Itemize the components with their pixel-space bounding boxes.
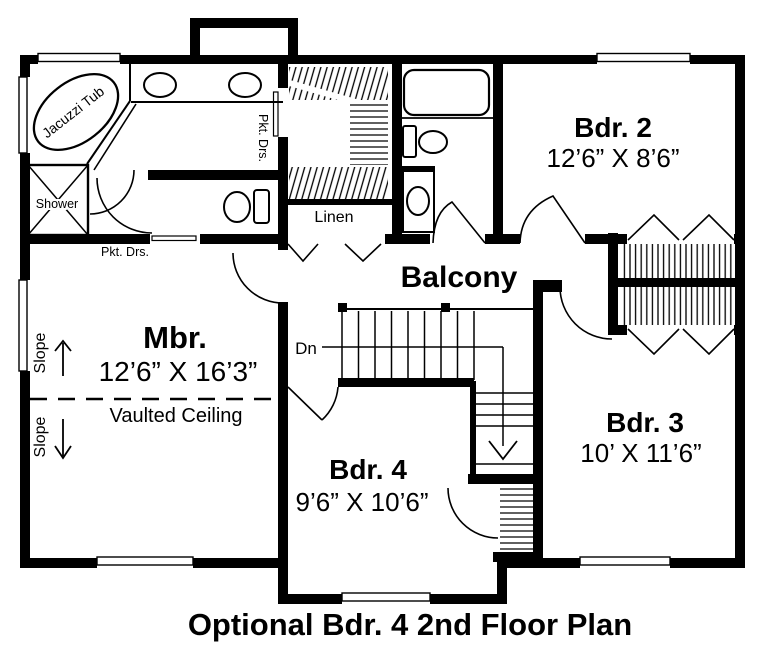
window-mbr-bottom (97, 557, 193, 565)
bifold-bdr2-closet-2 (683, 215, 734, 240)
toilet-tank-icon (403, 126, 416, 157)
tub-platform-diag-2 (94, 104, 136, 170)
label-stairs-down: Dn (295, 339, 317, 358)
door-arc-bdr4 (322, 387, 338, 420)
label-pocket-doors-hall: Pkt. Drs. (101, 245, 149, 259)
bifold-bdr3-closet-1 (628, 329, 679, 354)
walkin-closet-hatch-right (350, 103, 388, 165)
room-label-linen: Linen (314, 209, 353, 226)
wall-right (735, 55, 745, 568)
wall-bdr2-south-2 (585, 234, 627, 244)
wall-bdr4-closet-south (493, 552, 543, 562)
door-arc-shower (90, 170, 134, 214)
label-vaulted-ceiling: Vaulted Ceiling (109, 405, 242, 427)
wall-center-spine (278, 64, 288, 604)
room-label-mbr: Mbr. (143, 320, 207, 355)
door-bath (433, 202, 485, 243)
room-dims-bdr4: 9’6” X 10’6” (296, 487, 429, 517)
wall-linen-divider (288, 199, 392, 205)
opening-mbr-door (278, 250, 288, 302)
wall-stair-south (468, 474, 543, 484)
walkin-closet-hatch-top (289, 67, 388, 100)
wall-bay-right (497, 558, 507, 604)
window-bdr2-top (597, 54, 690, 62)
floor-plan-page: Mbr. 12’6” X 16’3” Bdr. 2 12’6” X 8’6” B… (0, 0, 760, 662)
bdr3-closet-hatch (620, 287, 732, 325)
window-bay (342, 593, 430, 601)
door-leaf-bdr4 (288, 387, 322, 420)
wall-bdr2-south-3 (734, 234, 745, 244)
door-arc-bdr3 (560, 287, 612, 339)
room-label-balcony: Balcony (401, 261, 518, 294)
pocket-door-hall (152, 236, 196, 241)
room-label-bdr3: Bdr. 3 (606, 407, 684, 438)
wall-closet2-south-2 (734, 325, 745, 335)
wall-wc-north (148, 170, 288, 180)
label-pocket-doors-closet: Pkt. Drs. (256, 114, 270, 162)
chimney-inner (200, 28, 288, 55)
fixture-label-shower: Shower (36, 197, 78, 211)
window-left-upper (19, 77, 27, 153)
window-top-left (38, 54, 120, 62)
sink-icon (229, 73, 261, 97)
wall-stair-west (470, 381, 476, 475)
wall-bdr3-door-stub (533, 280, 562, 292)
door-linen-right (345, 244, 381, 261)
bdr4-closet-hatch (500, 488, 533, 552)
hall-bath-fixtures (402, 70, 493, 232)
sink-icon (407, 187, 429, 215)
plan-title: Optional Bdr. 4 2nd Floor Plan (188, 607, 632, 642)
toilet-bowl-icon (419, 131, 447, 153)
stair-treads-lower (476, 393, 533, 464)
walkin-closet-hatch-bottom (289, 167, 388, 199)
wall-linen-jamb-right (385, 234, 397, 244)
room-label-bdr4: Bdr. 4 (329, 454, 407, 485)
wall-bdr2-south-1 (503, 234, 520, 244)
wall-stair-east (533, 292, 543, 562)
floor-plan-svg: Mbr. 12’6” X 16’3” Bdr. 2 12’6” X 8’6” B… (0, 0, 760, 662)
wall-bdr4-north-1 (278, 378, 288, 387)
wall-bath-south-2 (485, 234, 503, 244)
wall-closet2-south-1 (608, 325, 627, 335)
door-arc-mbr (233, 253, 283, 303)
stair-treads-upper (342, 311, 474, 380)
wall-closet-east (392, 64, 402, 244)
wall-mbr-north-east (200, 234, 283, 244)
bathtub-icon (404, 70, 489, 115)
door-arc-wc (97, 178, 152, 233)
bifold-bdr3-closet-2 (683, 329, 734, 354)
label-slope-lower: Slope (32, 416, 49, 457)
bifold-bdr2-closet-1 (628, 215, 679, 240)
rail-posts (338, 303, 543, 312)
door-arc-bdr4-closet (448, 488, 498, 538)
toilet-tank-icon (254, 190, 269, 223)
wall-closets-east-divider (608, 278, 740, 287)
door-linen-left (288, 244, 318, 261)
wall-bath-south-1 (402, 234, 430, 244)
sink-icon (144, 73, 176, 97)
tub-platform-diag-1 (87, 101, 130, 164)
wall-linen-jamb-left (283, 234, 288, 244)
room-dims-mbr: 12’6” X 16’3” (99, 356, 258, 387)
room-dims-bdr3: 10’ X 11’6” (580, 438, 701, 468)
opening-pocket-closet (278, 88, 288, 137)
window-bdr3-bottom (580, 557, 670, 565)
bdr2-closet-hatch (620, 244, 732, 278)
room-dims-bdr2: 12’6” X 8’6” (547, 143, 680, 173)
door-bdr2 (520, 196, 585, 243)
room-label-bdr2: Bdr. 2 (574, 112, 652, 143)
label-slope-upper: Slope (32, 332, 49, 373)
wall-bath-east (493, 64, 503, 244)
pocket-door-closet (274, 92, 279, 136)
toilet-bowl-icon (224, 192, 250, 222)
window-left-lower (19, 280, 27, 371)
